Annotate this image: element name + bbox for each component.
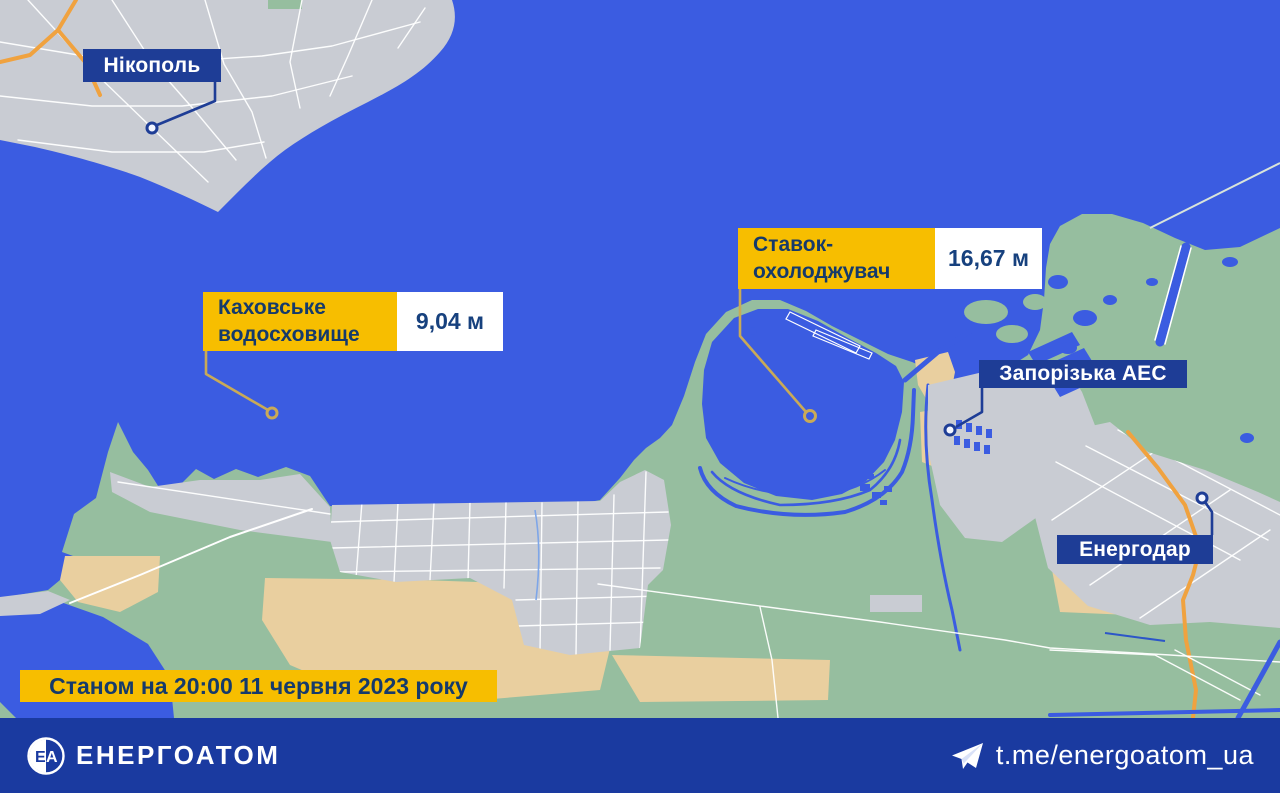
label-kakhovka: Каховське водосховище 9,04 м (203, 292, 503, 351)
telegram-paper-plane-icon (950, 741, 984, 771)
brand: Е А ЕНЕРГОАТОМ (26, 736, 280, 776)
telegram-handle: t.me/energoatom_ua (996, 740, 1254, 771)
energodar-marker (1197, 493, 1207, 503)
label-kakhovka-value: 9,04 м (397, 292, 503, 351)
map-svg (0, 0, 1280, 718)
telegram-link[interactable]: t.me/energoatom_ua (950, 740, 1254, 771)
nikopol-marker (147, 123, 157, 133)
timestamp-banner: Станом на 20:00 11 червня 2023 року (20, 670, 497, 702)
znpp-marker (945, 425, 955, 435)
map (0, 0, 1280, 718)
footer-bar: Е А ЕНЕРГОАТОМ t.me/energoatom_ua (0, 718, 1280, 793)
label-nikopol: Нікополь (83, 49, 221, 82)
label-cooling-pond-name: Ставок- охолоджувач (738, 228, 935, 289)
svg-text:А: А (46, 749, 60, 766)
label-kakhovka-name: Каховське водосховище (203, 292, 397, 351)
label-energodar: Енергодар (1057, 535, 1213, 564)
infographic-canvas: Нікополь Каховське водосховище 9,04 м Ст… (0, 0, 1280, 793)
label-znpp: Запорізька АЕС (979, 360, 1187, 388)
label-energodar-text: Енергодар (1079, 538, 1191, 562)
label-cooling-pond: Ставок- охолоджувач 16,67 м (738, 228, 1042, 289)
timestamp-text: Станом на 20:00 11 червня 2023 року (49, 673, 468, 700)
field-sand (612, 655, 830, 702)
brand-name: ЕНЕРГОАТОМ (76, 740, 280, 771)
energoatom-logo-icon: Е А (26, 736, 66, 776)
label-nikopol-text: Нікополь (104, 54, 201, 78)
label-znpp-text: Запорізька АЕС (999, 362, 1167, 386)
label-cooling-pond-value: 16,67 м (935, 228, 1042, 289)
